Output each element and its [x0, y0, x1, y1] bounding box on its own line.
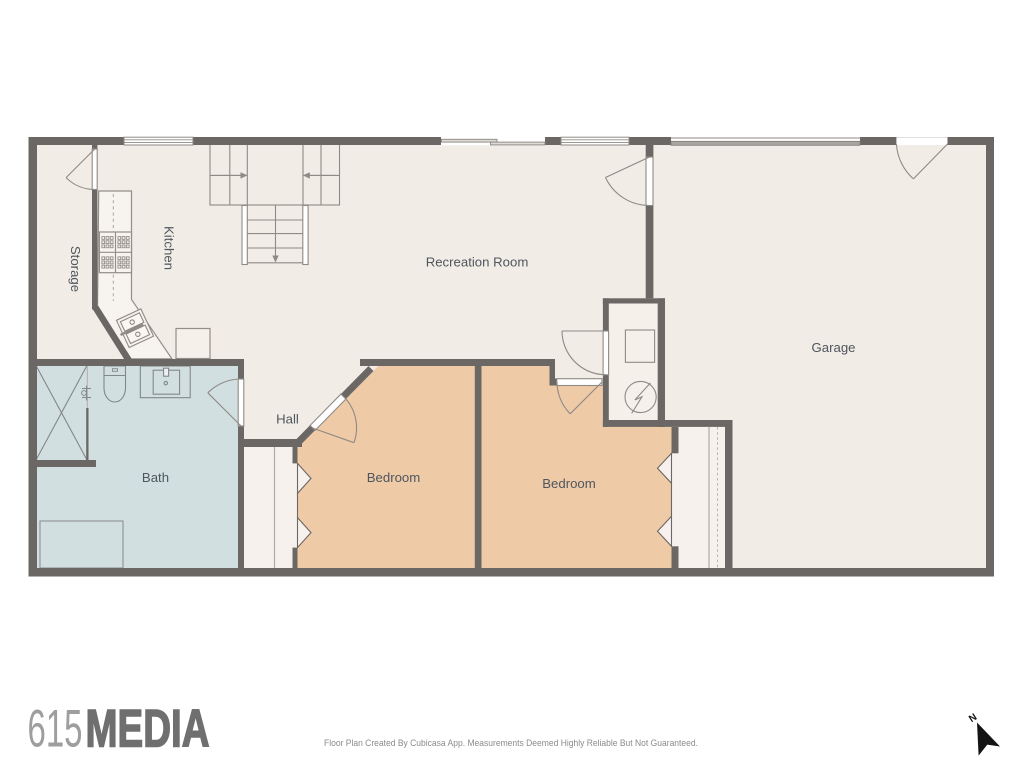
svg-text:Bath: Bath [142, 470, 169, 485]
svg-text:Storage: Storage [68, 246, 83, 292]
svg-text:615: 615 [28, 700, 83, 759]
svg-text:Floor Plan Created By Cubicasa: Floor Plan Created By Cubicasa App. Meas… [324, 738, 698, 749]
svg-text:Kitchen: Kitchen [162, 226, 177, 270]
svg-text:Hall: Hall [276, 412, 299, 427]
svg-text:MEDIA: MEDIA [86, 700, 210, 759]
svg-text:Bedroom: Bedroom [542, 476, 596, 491]
svg-text:Bedroom: Bedroom [367, 470, 421, 485]
svg-text:Garage: Garage [812, 340, 856, 355]
svg-text:Recreation Room: Recreation Room [426, 255, 529, 270]
